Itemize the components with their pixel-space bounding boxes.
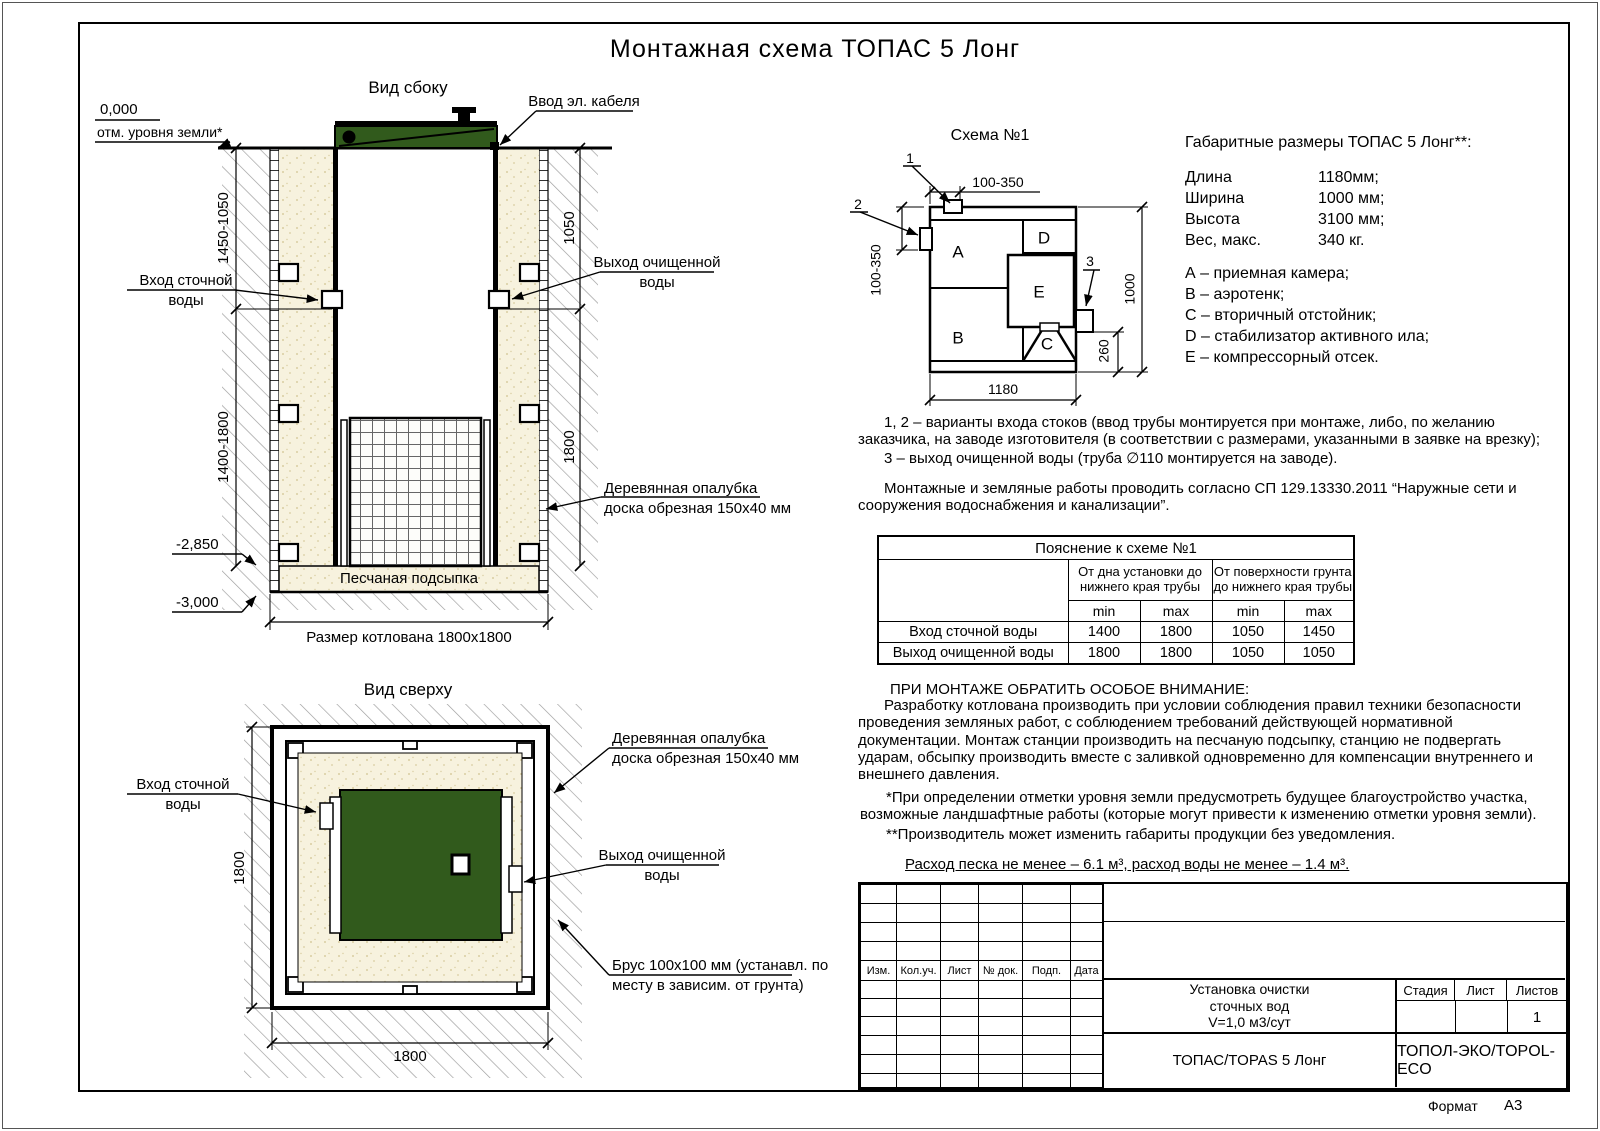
spec-value-length: 1180мм; [1318,168,1379,187]
table-title: Пояснение к схеме №1 [878,536,1354,560]
specs-heading: Габаритные размеры ТОПАС 5 Лонг**: [1185,133,1472,152]
tank-lid [335,107,499,150]
pit-size-label: Размер котлована 1800х1800 [306,629,511,647]
tv-formwork-label-2: доска обрезная 150х40 мм [612,750,799,768]
legend-a: А – приемная камера; [1185,264,1349,283]
format-value: А3 [1504,1097,1522,1115]
tv-beam-label-2: месту в зависим. от грунта) [612,977,804,995]
title-block: Изм. Кол.уч. Лист № док. Подп. Дата Уста… [858,882,1568,1090]
dim-right-top: 1050 [561,211,579,244]
schema-inlet-2 [920,228,932,250]
tv-outlet-label-2: воды [644,867,679,885]
schema-dim-bottom: 1180 [988,381,1018,398]
note-outlet: 3 – выход очищенной воды (труба ∅110 мон… [858,450,1558,467]
stage-block: Стадия Лист Листов 1 [1397,980,1567,1034]
legend-b: В – аэротенк; [1185,285,1284,304]
compartment-c-label: C [1041,335,1053,354]
spec-label-weight: Вес, макс. [1185,231,1261,250]
dim-left-bottom: 1400-1800 [215,411,233,483]
level-3000-label: -3,000 [176,594,219,612]
model-cell: ТОПАС/TOPAS 5 Лонг [1104,1034,1397,1087]
compartment-d-label: D [1038,229,1050,248]
title-block-right: Установка очистки сточных вод V=1,0 м3/с… [1102,884,1565,1088]
inner-board-left [341,420,347,566]
table-max1: max [1140,601,1212,622]
page-title: Монтажная схема ТОПАС 5 Лонг [610,34,1020,64]
col-ndok: № док. [979,961,1023,981]
spec-value-width: 1000 мм; [1318,189,1384,208]
legend-d: D – стабилизатор активного ила; [1185,327,1429,346]
inlet-port [322,291,342,308]
consumption-note: Расход песка не менее – 6.1 м³, расход в… [905,856,1349,874]
footnote-2: **Производитель может изменить габариты … [860,826,1560,843]
table-min1: min [1068,601,1140,622]
zero-level-label: 0,000 [100,101,138,119]
tank-top-view [340,790,502,940]
outlet-port-top [509,866,522,892]
cable-entry-point [490,142,499,150]
schema-callout-2: 2 [854,196,862,213]
compartment-e-label: E [1033,283,1044,302]
sheets-label: Листов [1507,980,1567,1001]
cable-entry-label: Ввод эл. кабеля [528,93,640,111]
schema-inlet-1 [944,200,962,213]
spec-value-height: 3100 мм; [1318,210,1384,229]
drawing-sheet: A B C D E Монтажная схема ТОПАС 5 Лонг В… [0,0,1600,1131]
service-hatch [452,855,469,874]
outlet-label-1: Выход очищенной [593,254,720,272]
note-variants: 1, 2 – варианты входа стоков (ввод трубы… [858,414,1558,449]
sheets-value: 1 [1507,1001,1567,1034]
inner-board-right [484,420,490,566]
legend-c: С – вторичный отстойник; [1185,306,1376,325]
sheet-label: Лист [1455,980,1507,1001]
spec-label-length: Длина [1185,168,1232,187]
tv-inlet-label-2: воды [165,796,200,814]
doc-title-line1: Установка очистки [1189,981,1309,998]
table-row: Выход очищенной воды 1800 1800 1050 1050 [878,643,1354,665]
footnote-1: *При определении отметки уровня земли пр… [860,789,1560,824]
schema-dim-left: 100-350 [868,244,885,295]
stage-label: Стадия [1397,980,1455,1001]
tank-base-grid [350,418,481,566]
spec-label-width: Ширина [1185,189,1244,208]
schema-1-drawing: A B C D E [850,166,1148,406]
ground-level-label: отм. уровня земли* [97,124,222,141]
doc-title-line2: сточных вод [1210,998,1290,1015]
schema-dim-top: 100-350 [972,174,1023,191]
schema-callout-1: 1 [906,150,914,167]
schema-outlet-3 [1076,310,1093,332]
note-works: Монтажные и земляные работы проводить со… [858,480,1558,515]
spec-value-weight: 340 кг. [1318,231,1364,250]
inlet-label-2: воды [168,292,203,310]
formwork-right [539,148,548,592]
sand-backfill-left [279,148,333,566]
format-label: Формат [1428,1098,1478,1115]
tv-dim-bottom: 1800 [393,1048,426,1066]
formwork-left [270,148,279,592]
tv-beam-label-1: Брус 100х100 мм (устанавл. по [612,957,828,975]
table-group2: От поверхности грунта до нижнего края тр… [1212,560,1354,601]
attention-body: Разработку котлована производить при усл… [858,697,1558,783]
col-data: Дата [1071,961,1103,981]
top-view-title: Вид сверху [364,680,453,700]
doc-title-line3: V=1,0 м3/сут [1208,1014,1291,1031]
board-right [501,797,512,933]
compartment-a-label: A [952,243,964,262]
schema-dim-right2: 260 [1096,339,1113,362]
table-group1: От дна установки до нижнего края трубы [1068,560,1212,601]
table-min2: min [1212,601,1284,622]
outlet-port [489,291,509,308]
col-list: Лист [941,961,979,981]
side-view-title: Вид сбоку [368,78,447,98]
outlet-label-2: воды [639,274,674,292]
schema-callout-3: 3 [1086,253,1094,270]
schema-dim-right: 1000 [1122,273,1139,304]
tv-inlet-label-1: Вход сточной [136,776,229,794]
col-izm: Изм. [861,961,897,981]
spec-label-height: Высота [1185,210,1240,229]
legend-e: Е – компрессорный отсек. [1185,348,1379,367]
dim-left-top: 1450-1050 [215,192,233,264]
tv-dim-left: 1800 [231,851,249,884]
formwork-label-2: доска обрезная 150х40 мм [604,500,791,518]
dim-right-bottom: 1800 [561,430,579,463]
tank-wall-right [493,148,498,566]
table-max2: max [1284,601,1354,622]
formwork-label-1: Деревянная опалубка [604,480,757,498]
col-podp: Подп. [1023,961,1071,981]
level-2850-label: -2,850 [176,536,219,554]
revision-header-row: Изм. Кол.уч. Лист № док. Подп. Дата [861,961,1103,981]
revision-grid: Изм. Кол.уч. Лист № док. Подп. Дата [860,884,1103,1088]
explanation-table: Пояснение к схеме №1 От дна установки до… [877,535,1355,665]
sand-backfill-right [498,148,539,566]
inlet-label-1: Вход сточной [139,272,232,290]
doc-title-cell: Установка очистки сточных вод V=1,0 м3/с… [1104,980,1397,1034]
tv-outlet-label-1: Выход очищенной [598,847,725,865]
table-row: Вход сточной воды 1400 1800 1050 1450 [878,622,1354,643]
col-koluch: Кол.уч. [897,961,941,981]
company-cell: ТОПОЛ-ЭКО/TOPOL-ECO [1397,1034,1567,1087]
inlet-port-top [320,803,333,829]
ground-hatch-bottom [270,592,548,610]
schema-title: Схема №1 [951,126,1030,145]
tv-formwork-label-1: Деревянная опалубка [612,730,765,748]
tank-wall-left [333,148,338,566]
compartment-b-label: B [952,329,963,348]
sand-bed-label: Песчаная подсыпка [340,570,478,588]
